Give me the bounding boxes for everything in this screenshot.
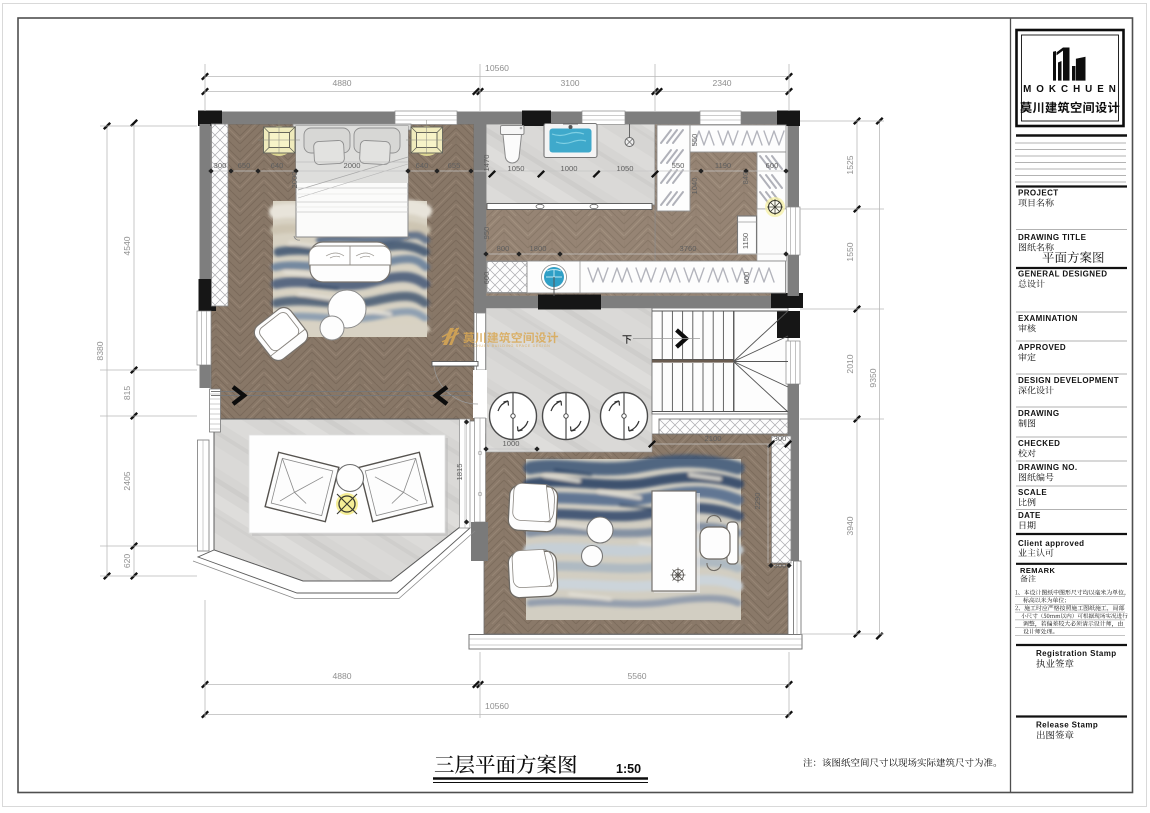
svg-text:APPROVED: APPROVED: [1018, 343, 1066, 352]
svg-text:5560: 5560: [627, 671, 646, 681]
svg-text:DRAWING NO.: DRAWING NO.: [1018, 463, 1078, 472]
svg-text:Registration Stamp: Registration Stamp: [1036, 649, 1117, 658]
svg-text:10560: 10560: [485, 701, 509, 711]
svg-text:1550: 1550: [845, 242, 855, 261]
svg-text:1150: 1150: [741, 233, 750, 249]
svg-text:300: 300: [774, 561, 787, 570]
svg-text:1470: 1470: [482, 155, 491, 172]
svg-text:Client approved: Client approved: [1018, 539, 1084, 548]
svg-text:600: 600: [742, 272, 751, 285]
svg-text:2405: 2405: [122, 471, 132, 490]
svg-text:550: 550: [672, 161, 685, 170]
svg-text:SCALE: SCALE: [1018, 488, 1047, 497]
svg-text:8380: 8380: [95, 341, 105, 360]
svg-text:DRAWING TITLE: DRAWING TITLE: [1018, 233, 1087, 242]
svg-text:CHECKED: CHECKED: [1018, 439, 1060, 448]
svg-text:1050: 1050: [508, 164, 525, 173]
svg-text:1:50: 1:50: [616, 762, 641, 776]
svg-text:620: 620: [122, 554, 132, 569]
svg-text:4540: 4540: [122, 236, 132, 255]
svg-text:655: 655: [448, 161, 461, 170]
svg-text:2010: 2010: [845, 354, 855, 373]
svg-text:3760: 3760: [680, 244, 697, 253]
svg-text:2340: 2340: [712, 78, 731, 88]
svg-text:DRAWING: DRAWING: [1018, 409, 1059, 418]
svg-text:1000: 1000: [503, 439, 520, 448]
svg-text:1190: 1190: [715, 161, 731, 170]
svg-text:1050: 1050: [617, 164, 634, 173]
svg-text:3100: 3100: [560, 78, 579, 88]
svg-text:REMARK: REMARK: [1020, 566, 1055, 575]
svg-text:640: 640: [271, 161, 284, 170]
svg-text:1815: 1815: [455, 464, 464, 481]
svg-text:650: 650: [238, 161, 251, 170]
svg-text:2100: 2100: [705, 434, 722, 443]
svg-text:Release Stamp: Release Stamp: [1036, 721, 1098, 730]
svg-text:10560: 10560: [485, 63, 509, 73]
svg-text:550: 550: [690, 134, 699, 147]
svg-text:1040: 1040: [690, 178, 699, 195]
svg-text:600: 600: [766, 161, 779, 170]
svg-text:950: 950: [482, 227, 491, 240]
svg-text:PROJECT: PROJECT: [1018, 189, 1059, 198]
svg-text:600: 600: [482, 272, 491, 285]
svg-text:640: 640: [416, 161, 429, 170]
svg-text:300: 300: [214, 161, 227, 170]
svg-text:2000: 2000: [290, 172, 299, 189]
svg-text:2290: 2290: [753, 493, 762, 510]
svg-text:300: 300: [774, 434, 787, 443]
svg-text:3940: 3940: [845, 516, 855, 535]
svg-text:1525: 1525: [845, 155, 855, 174]
svg-text:9350: 9350: [868, 368, 878, 387]
svg-text:1800: 1800: [530, 244, 547, 253]
svg-text:DATE: DATE: [1018, 511, 1041, 520]
svg-text:4880: 4880: [332, 78, 351, 88]
svg-text:1000: 1000: [561, 164, 578, 173]
svg-text:GENERAL DESIGNED: GENERAL DESIGNED: [1018, 270, 1107, 279]
svg-text:840: 840: [741, 172, 750, 185]
svg-text:MOKCHUEN: MOKCHUEN: [1023, 84, 1121, 95]
svg-text:815: 815: [122, 386, 132, 401]
svg-text:EXAMINATION: EXAMINATION: [1018, 314, 1078, 323]
svg-text:2000: 2000: [344, 161, 361, 170]
svg-text:800: 800: [497, 244, 510, 253]
svg-text:MOKCHUEN BUILDING SPACE DESIGN: MOKCHUEN BUILDING SPACE DESIGN: [464, 344, 551, 348]
svg-text:DESIGN DEVELOPMENT: DESIGN DEVELOPMENT: [1018, 376, 1119, 385]
svg-text:4880: 4880: [332, 671, 351, 681]
